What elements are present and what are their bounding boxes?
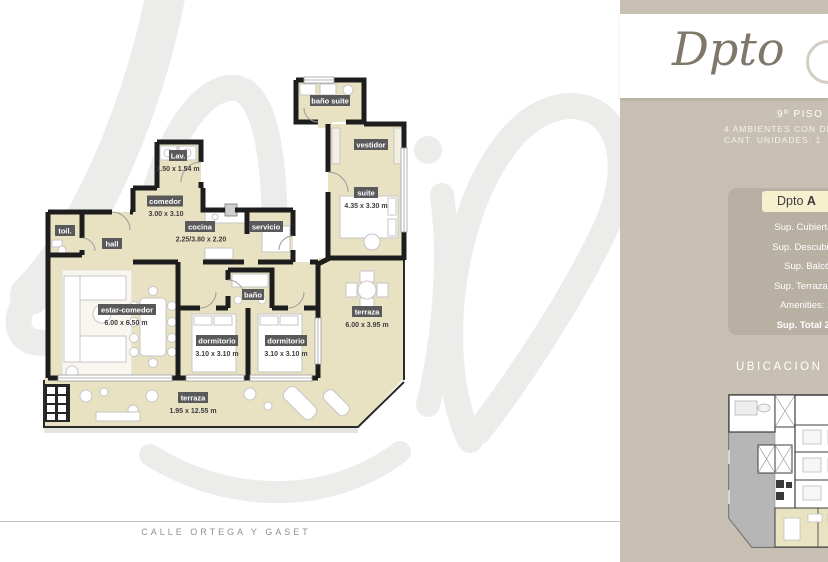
- location-heading: UBICACION EN PL: [736, 361, 828, 373]
- planter-grid: [44, 384, 70, 422]
- svg-text:baño suite: baño suite: [311, 97, 349, 106]
- svg-text:suite: suite: [357, 189, 375, 198]
- floor-plan: baño suite Lav. 1.50 x 1.54 m vestidor s…: [0, 0, 620, 562]
- room-label-servicio: servicio: [249, 221, 283, 232]
- info-sidebar: Dpto 9º PISO 4 AMBIENTES CON DEPE CANT. …: [620, 0, 828, 562]
- svg-text:4.35 x 3.30 m: 4.35 x 3.30 m: [344, 203, 387, 210]
- svg-text:6.00 x 6.50 m: 6.00 x 6.50 m: [104, 320, 147, 327]
- svg-text:baño: baño: [244, 291, 262, 300]
- svg-text:servicio: servicio: [252, 223, 281, 232]
- unit-badge-name: Dpto: [777, 194, 803, 208]
- svg-text:estar-comedor: estar-comedor: [101, 306, 153, 315]
- plan-sheet: baño suite Lav. 1.50 x 1.54 m vestidor s…: [0, 0, 828, 562]
- surface-line-cubierta: Sup. Cubierta: 155: [728, 218, 828, 238]
- svg-text:2.25/3.80 x 2.20: 2.25/3.80 x 2.20: [176, 237, 227, 244]
- svg-text:hall: hall: [106, 240, 119, 249]
- svg-text:3.00 x 3.10: 3.00 x 3.10: [148, 211, 183, 218]
- svg-text:toil.: toil.: [58, 227, 71, 236]
- svg-text:6.00 x 3.95 m: 6.00 x 3.95 m: [345, 322, 388, 329]
- surface-line-total: Sup. Total 220 m: [728, 316, 828, 336]
- room-label-bano: baño: [242, 289, 264, 300]
- svg-text:Lav.: Lav.: [171, 152, 185, 161]
- surface-line-amenities: Amenities: 12 m: [728, 296, 828, 316]
- street-label: CALLE ORTEGA Y GASET: [0, 527, 452, 537]
- svg-text:comedor: comedor: [149, 197, 181, 206]
- surface-lines: Sup. Cubierta: 155 Sup. Descubierta: 2 S…: [728, 218, 828, 335]
- dpto-script-title: Dpto: [672, 22, 785, 76]
- svg-text:dormitorio: dormitorio: [198, 337, 236, 346]
- street-divider-line: [0, 521, 620, 522]
- svg-text:3.10 x 3.10 m: 3.10 x 3.10 m: [195, 351, 238, 358]
- room-label-toil: toil.: [55, 225, 75, 236]
- units-count: CANT. UNIDADES: 1: [724, 135, 821, 145]
- title-band: Dpto: [620, 14, 828, 98]
- svg-text:dormitorio: dormitorio: [267, 337, 305, 346]
- svg-text:terraza: terraza: [355, 308, 380, 317]
- surface-line-terraza: Sup. Terraza: 25 m: [728, 277, 828, 297]
- plan-pane: baño suite Lav. 1.50 x 1.54 m vestidor s…: [0, 0, 620, 562]
- room-label-bano-suite: baño suite: [310, 95, 350, 106]
- unit-circle-icon: [806, 40, 828, 84]
- room-label-vestidor: vestidor: [354, 139, 388, 150]
- floor-number: 9º PISO: [777, 109, 823, 120]
- surface-line-descubierta: Sup. Descubierta: 2: [728, 238, 828, 258]
- unit-badge: Dpto A: [762, 191, 828, 212]
- surface-line-balcon: Sup. Balcón: -: [728, 257, 828, 277]
- svg-text:3.10 x 3.10 m: 3.10 x 3.10 m: [264, 351, 307, 358]
- svg-text:cocina: cocina: [188, 223, 213, 232]
- svg-text:1.95 x 12.55 m: 1.95 x 12.55 m: [169, 408, 216, 415]
- svg-text:terraza: terraza: [181, 394, 206, 403]
- svg-text:1.50 x 1.54 m: 1.50 x 1.54 m: [156, 166, 199, 173]
- unit-info-card: Dpto A Sup. Cubierta: 155 Sup. Descubier…: [728, 188, 828, 335]
- unit-badge-letter: A: [807, 194, 816, 208]
- location-mini-plan: [728, 390, 828, 562]
- room-label-hall: hall: [102, 238, 122, 249]
- svg-text:vestidor: vestidor: [356, 141, 385, 150]
- floor-description: 4 AMBIENTES CON DEPE: [724, 124, 828, 134]
